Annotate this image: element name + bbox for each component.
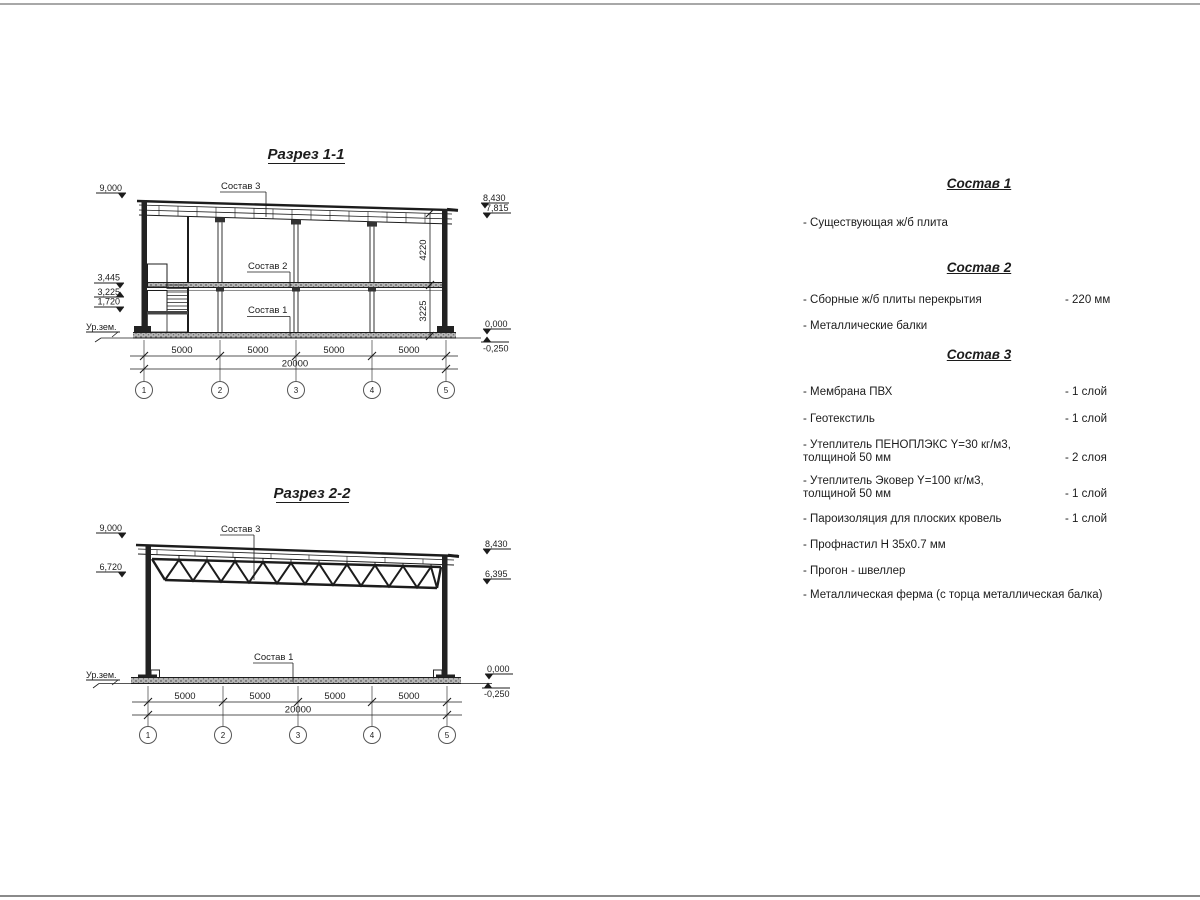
- dim-label: 5000: [247, 345, 268, 356]
- section1-vertical-dimension: 4220 3225: [418, 209, 434, 340]
- elevation-label: 0,000: [487, 664, 510, 674]
- section1-leader-sostav2: Состав 2: [248, 261, 287, 272]
- elevation-label: 3,225: [97, 287, 120, 297]
- list-item: - Профнастил Н 35х0.7 мм: [803, 539, 1155, 552]
- elevation-label: -0,250: [484, 689, 510, 699]
- dim-label: 5000: [398, 691, 419, 702]
- list-item: - Пароизоляция для плоских кровель - 1 с…: [803, 513, 1155, 526]
- dim-label: 5000: [324, 691, 345, 702]
- section2-ground-slab: [93, 678, 492, 689]
- axis-label: 5: [445, 731, 450, 740]
- list-item: - Утеплитель Эковер Y=100 кг/м3, толщино…: [803, 475, 1155, 501]
- list-title-sostav3: Состав 3: [803, 347, 1155, 363]
- elevation-label: 9,000: [99, 523, 122, 533]
- vertical-dim-label: 3225: [418, 300, 429, 321]
- section2-truss: [152, 555, 441, 588]
- axis-label: 4: [370, 386, 375, 395]
- list-item: - Металлические балки: [803, 320, 1155, 333]
- list-item: - Сборные ж/б плиты перекрытия - 220 мм: [803, 294, 1155, 307]
- list-item: - Прогон - швеллер: [803, 565, 1155, 578]
- elevation-label: 1,720: [97, 297, 120, 307]
- elevation-label: 0,000: [485, 319, 508, 329]
- section1-axis-bubbles: 1 2 3 4 5: [136, 382, 455, 399]
- page-bottom-border: [0, 895, 1200, 897]
- dim-label: 5000: [398, 345, 419, 356]
- dim-label: 5000: [249, 691, 270, 702]
- axis-label: 3: [296, 731, 301, 740]
- list-title-sostav1: Состав 1: [803, 176, 1155, 192]
- dim-label: 5000: [171, 345, 192, 356]
- total-dim-label: 20000: [285, 705, 311, 716]
- section2-axis-bubbles: 1 2 3 4 5: [140, 727, 456, 744]
- axis-label: 2: [218, 386, 223, 395]
- vertical-dim-label: 4220: [418, 239, 429, 260]
- ground-level-label: Ур.зем.: [86, 670, 117, 680]
- axis-label: 1: [146, 731, 151, 740]
- section1-bottom-dimensions: 5000 5000 5000 5000 20000: [130, 340, 458, 381]
- section2-leader-sostav1: Состав 1: [254, 652, 293, 663]
- section1-title: Разрез 1-1: [267, 146, 344, 163]
- elevation-label: 8,430: [483, 193, 506, 203]
- axis-label: 1: [142, 386, 147, 395]
- section2-bottom-dimensions: 5000 5000 5000 5000 20000: [132, 686, 462, 727]
- section-2-2-drawing: Разрез 2-2: [60, 480, 530, 760]
- section2-title: Разрез 2-2: [273, 485, 351, 502]
- axis-label: 2: [221, 731, 226, 740]
- section2-leader-sostav3: Состав 3: [221, 524, 260, 535]
- section1-floor-slab: [147, 283, 442, 292]
- dim-label: 5000: [323, 345, 344, 356]
- elevation-label: -0,250: [483, 344, 509, 354]
- axis-label: 3: [294, 386, 299, 395]
- section1-ground-slab: [95, 326, 481, 342]
- list-item: - Металлическая ферма (с торца металличе…: [803, 589, 1155, 602]
- list-item: - Геотекстиль - 1 слой: [803, 413, 1155, 426]
- elevation-label: 6,395: [485, 569, 508, 579]
- elevation-label: 9,000: [99, 183, 122, 193]
- elevation-label: 8,430: [485, 539, 508, 549]
- list-title-sostav2: Состав 2: [803, 260, 1155, 276]
- ground-level-label: Ур.зем.: [86, 322, 117, 332]
- dim-label: 5000: [174, 691, 195, 702]
- section1-leader-sostav3: Состав 3: [221, 181, 260, 192]
- section1-leader-sostav1: Состав 1: [248, 305, 287, 316]
- section-1-1-drawing: Разрез 1-1: [60, 130, 530, 410]
- page-top-border: [0, 3, 1200, 5]
- list-item: - Мембрана ПВХ - 1 слой: [803, 386, 1155, 399]
- total-dim-label: 20000: [282, 359, 308, 370]
- drawing-sheet: { "page": {"background": "#ffffff", "lin…: [0, 0, 1200, 900]
- elevation-label: 6,720: [99, 562, 122, 572]
- axis-label: 5: [444, 386, 449, 395]
- elevation-label: 3,445: [97, 273, 120, 283]
- list-item: - Утеплитель ПЕНОПЛЭКС Y=30 кг/м3, толщи…: [803, 439, 1155, 465]
- list-item: - Существующая ж/б плита: [803, 217, 1155, 230]
- section1-staircase: [148, 264, 189, 332]
- elevation-label: 7,815: [486, 203, 509, 213]
- composition-lists: Состав 1 - Существующая ж/б плита Состав…: [803, 176, 1155, 602]
- axis-label: 4: [370, 731, 375, 740]
